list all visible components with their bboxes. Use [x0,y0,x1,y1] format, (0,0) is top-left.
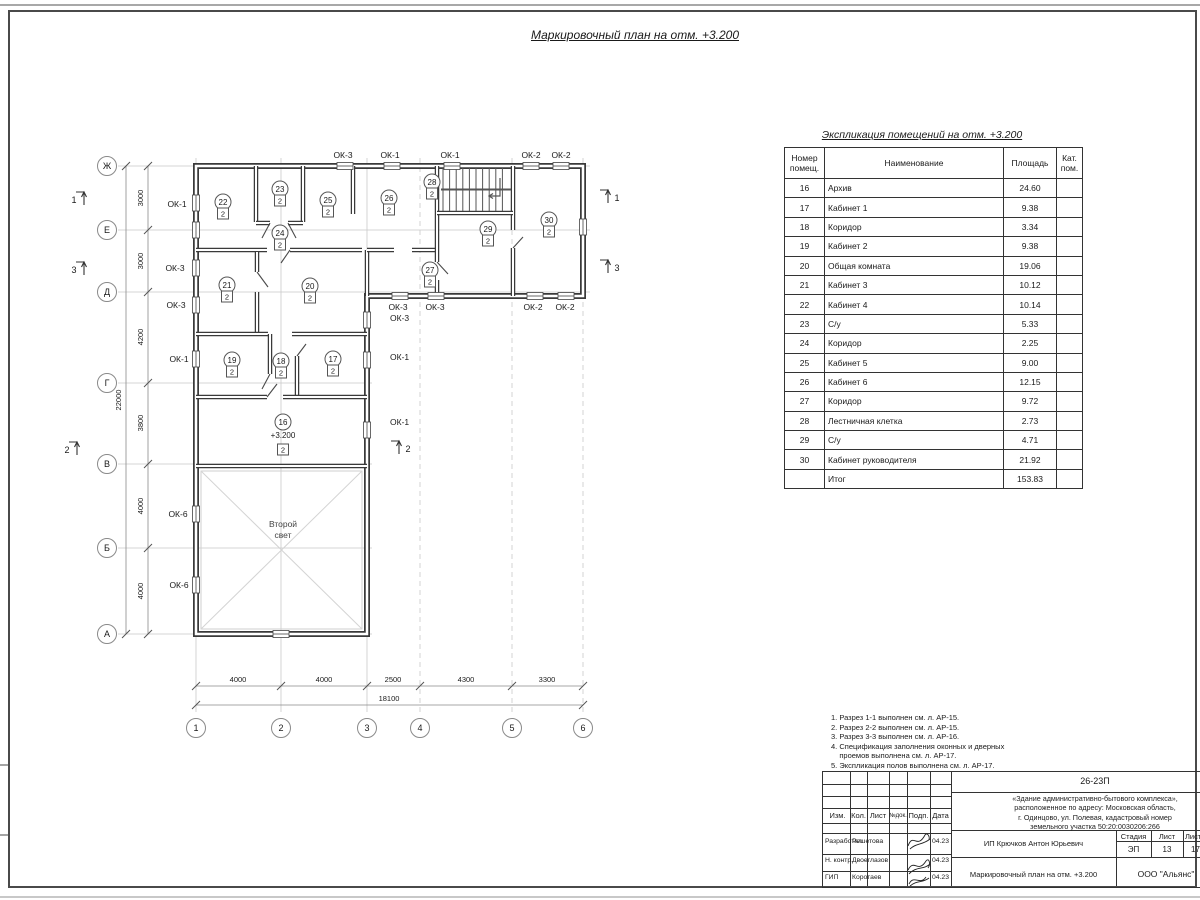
schedule-row: 30Кабинет руководителя21.92 [785,450,1083,469]
schedule-row: 19Кабинет 29.38 [785,237,1083,256]
room-number: 22 [785,295,825,314]
stage-label: Стадия [1116,832,1151,841]
note-line: 3. Разрез 3-3 выполнен см. л. АР-16. [831,732,1004,742]
axis-label: 3 [364,723,369,733]
notes-list: 1. Разрез 1-1 выполнен см. л. АР-15.2. Р… [831,713,1004,771]
note-line: 2. Разрез 2-2 выполнен см. л. АР-15. [831,723,1004,733]
dim-text: 3000 [136,253,145,270]
note-line: 5. Экспликация полов выполнена см. л. АР… [831,761,1004,771]
unit-box-value: 2 [326,208,330,217]
section-arrow [391,441,402,454]
walls [196,166,583,634]
schedule-row: 21Кабинет 310.12 [785,275,1083,294]
axis-label: А [104,629,110,639]
room-area: 2.25 [1004,334,1057,353]
dim-text: 4000 [316,675,333,684]
room-number: 20 [785,256,825,275]
room-area: 10.14 [1004,295,1057,314]
section-number: 3 [71,265,76,275]
stair-arrow [489,178,500,199]
room-name: Кабинет руководителя [825,450,1004,469]
section-number: 2 [405,444,410,454]
room-marker-number: 26 [385,194,394,203]
room-marker-number: 19 [228,356,237,365]
signatures [905,828,932,888]
room-marker-number: 28 [428,178,437,187]
room-category [1057,411,1083,430]
room-number: 27 [785,392,825,411]
dim-text: 4300 [458,675,475,684]
axis-label: Е [104,225,110,235]
doc-number: 26-23П [951,776,1200,786]
room-area: 21.92 [1004,450,1057,469]
window-label: ОК-3 [166,300,185,310]
door-leaf [267,384,277,397]
schedule-row: 23С/у5.33 [785,314,1083,333]
room-name: Кабинет 5 [825,353,1004,372]
schedule-row: 22Кабинет 410.14 [785,295,1083,314]
stamp-col-list: Лист [867,811,889,820]
room-category [1057,198,1083,217]
section-arrow [76,192,87,205]
room-number: 28 [785,411,825,430]
dim-text: 2500 [385,675,402,684]
schedule-row: 20Общая комната19.06 [785,256,1083,275]
stamp-line [951,792,1200,793]
stamp-sheet-title: Маркировочный план на отм. +3.200 [951,870,1116,879]
room-area: 9.72 [1004,392,1057,411]
room-name: Коридор [825,334,1004,353]
schedule-row: 18Коридор3.34 [785,217,1083,236]
light-well [201,471,362,629]
room-marker-number: 22 [219,198,228,207]
window-label: ОК-2 [521,150,540,160]
door-leaf [281,250,290,263]
window-label: ОК-1 [167,199,186,209]
room-area: 19.06 [1004,256,1057,275]
room-category [1057,217,1083,236]
schedule-row: 17Кабинет 19.38 [785,198,1083,217]
staircase [441,168,511,211]
client-name: ИП Крючков Антон Юрьевич [951,839,1116,848]
room-schedule: Экспликация помещений на отм. +3.200 Ном… [784,129,1060,489]
sheets-label: Листов [1185,832,1200,841]
company-name: ООО "Альянс" [1116,869,1200,879]
unit-box-value: 2 [428,278,432,287]
unit-box-value: 2 [230,368,234,377]
drawing-sheet: { "page": { "title": "Маркировочный план… [0,0,1200,900]
room-number [785,469,825,488]
section-arrow [69,442,80,455]
stamp-col-izm: Изм. [825,811,850,820]
unit-box-value: 2 [486,237,490,246]
room-category [1057,392,1083,411]
door-leaf [297,344,306,356]
schedule-total-row: Итог153.83 [785,469,1083,488]
window-label: ОК-3 [333,150,352,160]
room-name: Кабинет 2 [825,237,1004,256]
stamp-line [867,772,868,886]
unit-box-value: 2 [308,294,312,303]
room-number: 23 [785,314,825,333]
room-marker-number: 27 [426,266,435,275]
room-number: 19 [785,237,825,256]
window-label: ОК-3 [390,313,409,323]
room-number: 21 [785,275,825,294]
window-label: ОК-1 [169,354,188,364]
col-header-number: Номер помещ. [785,148,825,179]
stamp-col-data: Дата [930,811,951,820]
room-marker-number: 29 [484,225,493,234]
second-light-label: свет [274,530,291,540]
room-category [1057,469,1083,488]
room-marker-number: 30 [545,216,554,225]
room-number: 16 [785,179,825,198]
axis-label: Ж [103,161,112,171]
room-marker-number: 25 [324,196,333,205]
axis-label: 1 [193,723,198,733]
col-header-name: Наименование [825,148,1004,179]
unit-box-value: 2 [547,228,551,237]
window-label: ОК-3 [425,302,444,312]
dim-text-total: 22000 [114,390,123,411]
room-area: 2.73 [1004,411,1057,430]
room-area: 9.00 [1004,353,1057,372]
section-arrow [600,190,611,203]
unit-box-value: 2 [387,206,391,215]
room-area: 9.38 [1004,237,1057,256]
room-number: 30 [785,450,825,469]
schedule-row: 29С/у4.71 [785,431,1083,450]
room-area: 5.33 [1004,314,1057,333]
stamp-line [850,772,851,886]
signer-role: ГИП [825,874,838,881]
window-label: ОК-2 [551,150,570,160]
room-number: 24 [785,334,825,353]
room-number: 18 [785,217,825,236]
room-category [1057,256,1083,275]
stamp-line [889,772,890,886]
room-marker-number: 23 [276,185,285,194]
door-leaf [513,237,523,248]
signature-date: 04.23 [930,857,951,864]
project-description-line: «Здание административно-бытового комплек… [951,794,1200,803]
project-description-line: земельного участка 50:20:0030206:266 [951,822,1200,831]
room-area: 24.60 [1004,179,1057,198]
window-label: ОК-2 [523,302,542,312]
window-label: ОК-1 [440,150,459,160]
section-number: 2 [64,445,69,455]
room-name: Коридор [825,392,1004,411]
project-description-line: расположенное по адресу: Московская обла… [951,803,1200,812]
room-category [1057,372,1083,391]
section-number: 3 [614,263,619,273]
room-marker-number: 16 [279,418,288,427]
window-label: ОК-3 [165,263,184,273]
schedule-row: 25Кабинет 59.00 [785,353,1083,372]
room-name: С/у [825,431,1004,450]
room-name: Архив [825,179,1004,198]
axis-label: 5 [509,723,514,733]
room-name: Кабинет 3 [825,275,1004,294]
room-number: 25 [785,353,825,372]
room-category [1057,334,1083,353]
section-number: 1 [614,193,619,203]
room-category [1057,353,1083,372]
schedule-row: 16Архив24.60 [785,179,1083,198]
axis-label: Б [104,543,110,553]
room-schedule-table: Номер помещ. Наименование Площадь Кат. п… [784,147,1083,489]
axis-label: Д [104,287,110,297]
stamp-line [823,796,951,797]
room-number: 17 [785,198,825,217]
axis-label: Г [105,378,110,388]
unit-box-value: 2 [331,367,335,376]
window-label: ОК-6 [169,580,188,590]
room-name: Общая комната [825,256,1004,275]
stamp-line [951,857,1200,858]
dim-text: 3000 [136,190,145,207]
door-leaf [437,262,448,274]
signature-date: 04.23 [930,874,951,881]
room-category [1057,179,1083,198]
room-category [1057,431,1083,450]
schedule-row: 27Коридор9.72 [785,392,1083,411]
axis-label: 4 [417,723,422,733]
unit-box-value: 2 [279,369,283,378]
windows [193,163,587,638]
room-name: С/у [825,314,1004,333]
room-name: Коридор [825,217,1004,236]
room-number: 29 [785,431,825,450]
note-line: проемов выполнена см. л. АР-17. [831,751,1004,761]
room-marker-number: 18 [277,357,286,366]
stamp-col-kol: Кол. [850,811,867,820]
window-label: ОК-1 [390,352,409,362]
room-category [1057,450,1083,469]
door-leaf [257,272,268,287]
room-marker-number: 21 [223,281,232,290]
dim-text: 4000 [136,498,145,515]
unit-box-value: 2 [278,241,282,250]
room-marker-number: 24 [276,229,285,238]
room-marker-number: 20 [306,282,315,291]
room-number: 26 [785,372,825,391]
section-arrow [600,260,611,273]
stage-value: ЭП [1116,845,1151,854]
dim-text: 4000 [230,675,247,684]
window-label: ОК-3 [388,302,407,312]
room-area: 3.34 [1004,217,1057,236]
schedule-row: 26Кабинет 612.15 [785,372,1083,391]
room-category [1057,275,1083,294]
schedule-row: 24Коридор2.25 [785,334,1083,353]
section-arrow [76,262,87,275]
stamp-line [1116,841,1200,842]
col-header-cat: Кат. пом. [1057,148,1083,179]
window-label: ОК-2 [555,302,574,312]
stamp-line [823,823,951,824]
unit-box-value: 2 [430,190,434,199]
unit-box-value: 2 [225,293,229,302]
window-label: ОК-1 [380,150,399,160]
signer-name: Решетова [852,838,883,845]
sheet-label: Лист [1151,832,1183,841]
total-area: 153.83 [1004,469,1057,488]
elevation-mark: +3.200 [271,431,296,440]
room-category [1057,237,1083,256]
signer-name: Двоеглазов [852,857,888,864]
door-leaf [262,374,270,389]
sheet-title: Маркировочный план на отм. +3.200 [420,28,850,42]
signer-name: Коротаев [852,874,881,881]
axis-label: 2 [278,723,283,733]
note-line: 1. Разрез 1-1 выполнен см. л. АР-15. [831,713,1004,723]
project-description-line: г. Одинцово, ул. Полевая, кадастровый но… [951,813,1200,822]
room-category [1057,295,1083,314]
room-name: Кабинет 4 [825,295,1004,314]
note-line: 4. Спецификация заполнения оконных и две… [831,742,1004,752]
unit-box-value: 2 [278,197,282,206]
window-label: ОК-6 [168,509,187,519]
dim-text: 4000 [136,583,145,600]
window-label: ОК-1 [390,417,409,427]
room-category [1057,314,1083,333]
dim-text: 3800 [136,415,145,432]
stamp-col-ndoc: №док. [888,813,908,819]
room-name: Кабинет 6 [825,372,1004,391]
signature-date: 04.23 [930,838,951,845]
sheet-value: 13 [1151,845,1183,854]
room-schedule-title: Экспликация помещений на отм. +3.200 [784,129,1060,141]
dim-text-total: 18100 [379,694,400,703]
stamp-col-podp: Подп. [907,811,930,820]
room-name: Лестничная клетка [825,411,1004,430]
title-block: 26-23П «Здание административно-бытового … [822,771,1200,888]
sheets-value: 17 [1191,845,1200,854]
room-area: 4.71 [1004,431,1057,450]
axis-label: 6 [580,723,585,733]
axis-label: В [104,459,110,469]
interior-walls [196,166,513,466]
room-area: 10.12 [1004,275,1057,294]
stamp-line [823,808,951,809]
stamp-line [823,784,951,785]
room-area: 9.38 [1004,198,1057,217]
unit-box-value: 2 [221,210,225,219]
room-name: Кабинет 1 [825,198,1004,217]
stamp-line [1183,830,1184,857]
dim-text: 3300 [539,675,556,684]
dim-text: 4200 [136,329,145,346]
second-light-label: Второй [269,519,297,529]
col-header-area: Площадь [1004,148,1057,179]
schedule-row: 28Лестничная клетка2.73 [785,411,1083,430]
signer-role: Н. контр. [825,857,853,864]
room-marker-number: 17 [329,355,338,364]
total-label: Итог [825,469,1004,488]
unit-box-value: 2 [281,446,285,455]
room-area: 12.15 [1004,372,1057,391]
section-number: 1 [71,195,76,205]
